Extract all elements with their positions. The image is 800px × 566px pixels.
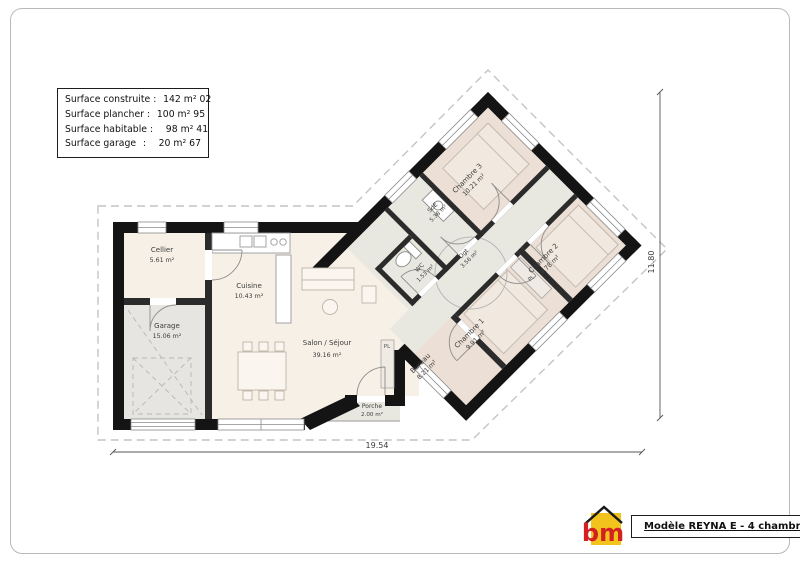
surface-value: 142 m² 02 [159, 93, 211, 108]
room-area-garage: 15.06 m² [153, 333, 182, 340]
title-block: bm Modèle REYNA E - 4 chambres [583, 503, 800, 549]
bm-logo-icon: bm [583, 503, 625, 549]
surface-row: Surface habitable : 98 m² 41 [65, 123, 201, 138]
surface-row: Surface construite : 142 m² 02 [65, 93, 201, 108]
room-area-salon: 39.16 m² [313, 352, 342, 359]
surface-row: Surface plancher : 100 m² 95 [65, 108, 201, 123]
surface-row: Surface garage : 20 m² 67 [65, 137, 201, 152]
dimension-height [657, 89, 663, 421]
surface-label: Surface habitable [65, 123, 147, 138]
room-area-cellier: 5.61 m² [150, 257, 175, 264]
room-label-porche: Porche [362, 403, 383, 410]
surface-label: Surface construite [65, 93, 150, 108]
room-label-cellier: Cellier [151, 246, 173, 254]
dimension-height-label: 11.80 [647, 251, 656, 274]
surface-label: Surface garage [65, 137, 136, 152]
floorplan-sheet: Cellier 5.61 m² Garage 15.06 m² Cuisine … [0, 0, 800, 566]
placard-label-bureau: PL [384, 344, 391, 350]
surface-label: Surface plancher [65, 108, 144, 123]
dimension-width-label: 19.54 [366, 441, 389, 450]
model-title-box: Modèle REYNA E - 4 chambres [631, 515, 800, 538]
surface-info-box: Surface construite : 142 m² 02 Surface p… [57, 88, 209, 158]
room-area-porche: 2.00 m² [361, 411, 383, 418]
logo-text: bm [583, 519, 624, 547]
room-label-salon: Salon / Séjour [303, 339, 352, 347]
room-label-garage: Garage [154, 322, 180, 330]
surface-value: 100 m² 95 [153, 108, 205, 123]
model-title: Modèle REYNA E - 4 chambres [644, 521, 800, 532]
surface-value: 20 m² 67 [149, 137, 201, 152]
floor-plan: Cellier 5.61 m² Garage 15.06 m² Cuisine … [0, 0, 800, 566]
room-area-cuisine: 10.43 m² [235, 293, 264, 300]
surface-value: 98 m² 41 [156, 123, 208, 138]
room-label-cuisine: Cuisine [236, 282, 262, 290]
